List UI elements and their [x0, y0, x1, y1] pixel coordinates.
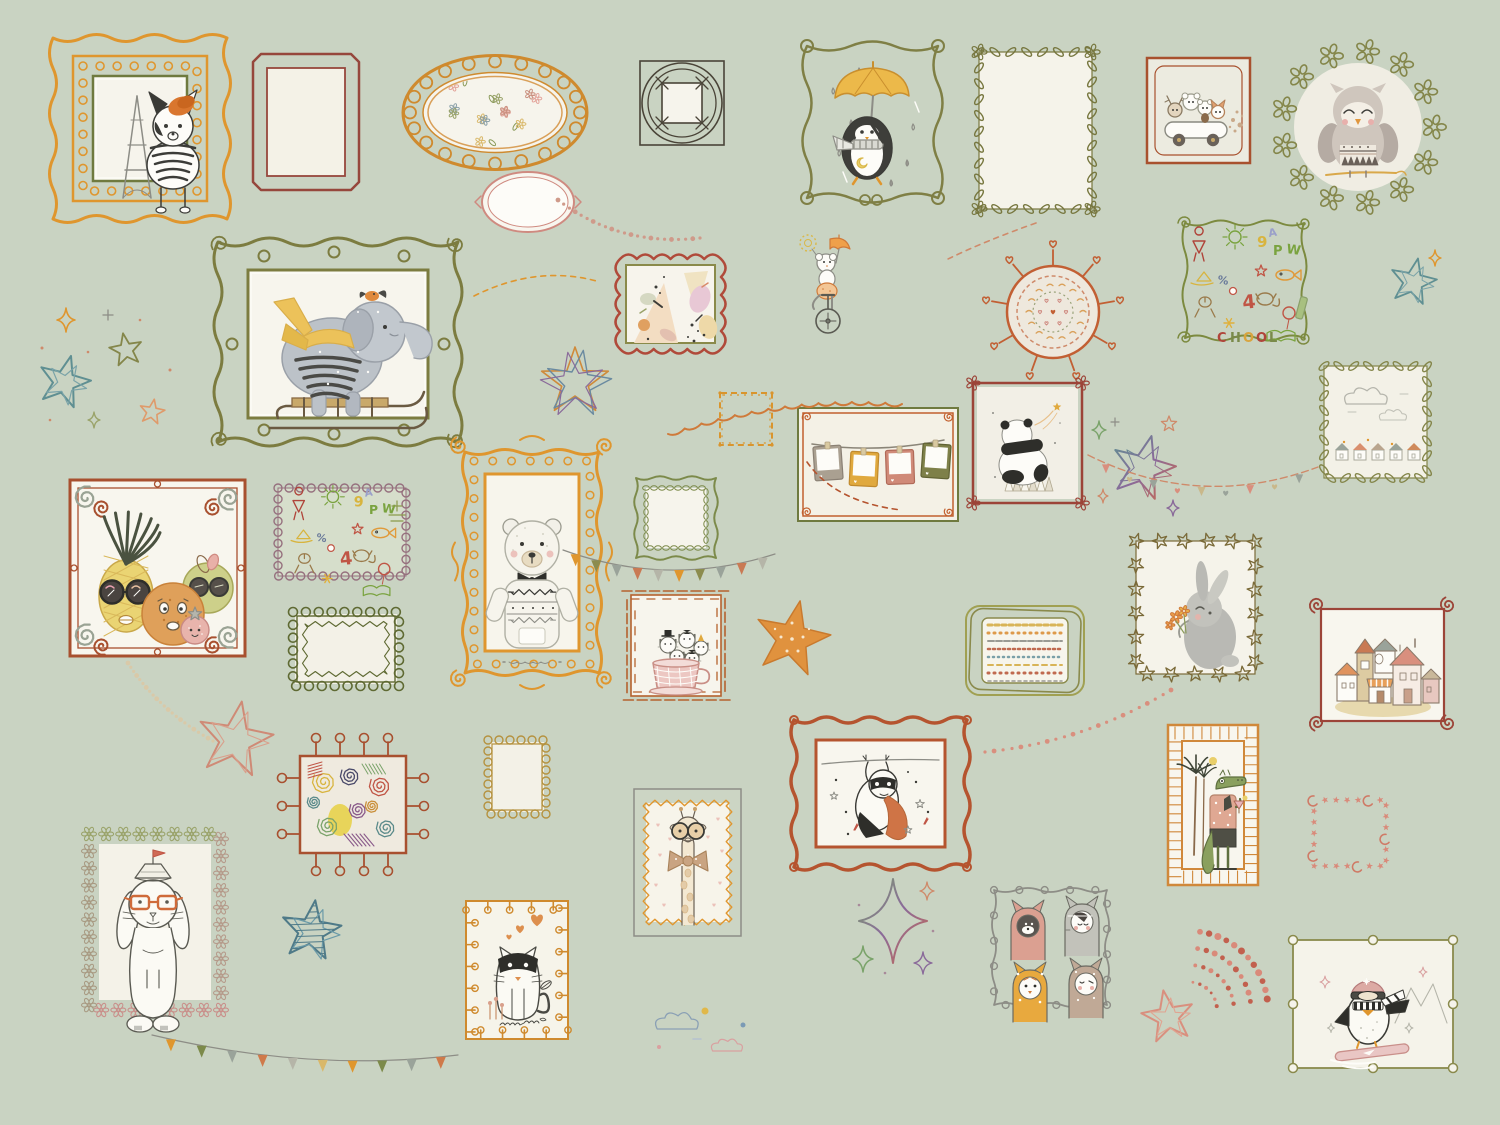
small-loop-square-frame [478, 728, 556, 826]
sloth-hero-frame [788, 712, 973, 877]
school-doodle-frame-2: 9APW4% [266, 476, 418, 588]
svg-text:O: O [1256, 331, 1267, 346]
animals-car-frame [1141, 52, 1256, 169]
giraffe-frame [630, 785, 745, 940]
garland-hearts [1080, 445, 1325, 525]
teal-striped-star [278, 885, 348, 980]
four-cats-frame [988, 880, 1113, 1015]
svg-text:P: P [1273, 244, 1283, 259]
svg-text:W: W [1285, 242, 1301, 259]
scribble-frame [288, 742, 418, 867]
garland-flags-bottom [140, 1025, 465, 1080]
small-clouds [645, 995, 765, 1065]
garland-dash-elephant [468, 258, 608, 308]
bunny-flower-frame [1118, 525, 1273, 690]
right-teal-star [1385, 248, 1445, 310]
olive-loop-frame [281, 600, 411, 698]
dog-paris-frame [45, 30, 235, 227]
elephant-sled-frame [208, 232, 468, 452]
penguin-umbrella [795, 32, 950, 212]
multicolor-star [535, 330, 615, 430]
penguin-surf-frame [1283, 928, 1463, 1080]
abstract-art-frame [604, 243, 737, 365]
gallery-wall-mural: 9APW4%CHOOL9APW4% [0, 0, 1500, 1125]
mouse-unicycle [780, 233, 865, 338]
svg-text:4: 4 [1241, 291, 1256, 314]
masked-cat-frame [452, 885, 582, 1055]
stars-moons-frame [1300, 788, 1400, 878]
woven-square-frame [632, 55, 732, 153]
bunny-boat-frame [73, 820, 238, 1025]
fruit-glasses-frame [60, 468, 255, 668]
svg-text:P: P [369, 503, 378, 517]
school-doodle-frame: 9APW4%CHOOL [1177, 213, 1312, 350]
svg-text:H: H [1230, 331, 1241, 346]
garland-dots-right [975, 680, 1180, 765]
owl-wreath [1268, 35, 1448, 215]
svg-text:9: 9 [354, 494, 364, 510]
svg-text:%: % [1216, 273, 1229, 288]
svg-text:4: 4 [339, 548, 354, 570]
orange-star [745, 593, 840, 688]
svg-text:L: L [1269, 331, 1277, 346]
cats-teacup-frame [621, 583, 731, 708]
garland-dash-tr [940, 215, 1045, 265]
svg-text:O: O [1243, 331, 1254, 346]
svg-text:A: A [1267, 226, 1278, 240]
garland-flags-mid [553, 542, 783, 597]
left-star-cluster [30, 300, 180, 440]
garland-dash-rust [795, 450, 910, 520]
garland-dots-left [118, 655, 223, 750]
houses-frame [1305, 595, 1460, 735]
clouds-houses-frame [1308, 352, 1443, 492]
empty-red-frame [247, 48, 365, 196]
svg-text:C: C [1217, 331, 1227, 346]
sparkle-diamonds [845, 875, 940, 980]
svg-text:9: 9 [1257, 233, 1267, 251]
garland-scallop [660, 392, 910, 447]
leafy-empty-frame [963, 38, 1108, 223]
garland-dots-top [540, 185, 710, 255]
oval-floral-frame [395, 50, 595, 175]
dot-spray [1175, 918, 1300, 1018]
panda-frame [965, 373, 1090, 513]
